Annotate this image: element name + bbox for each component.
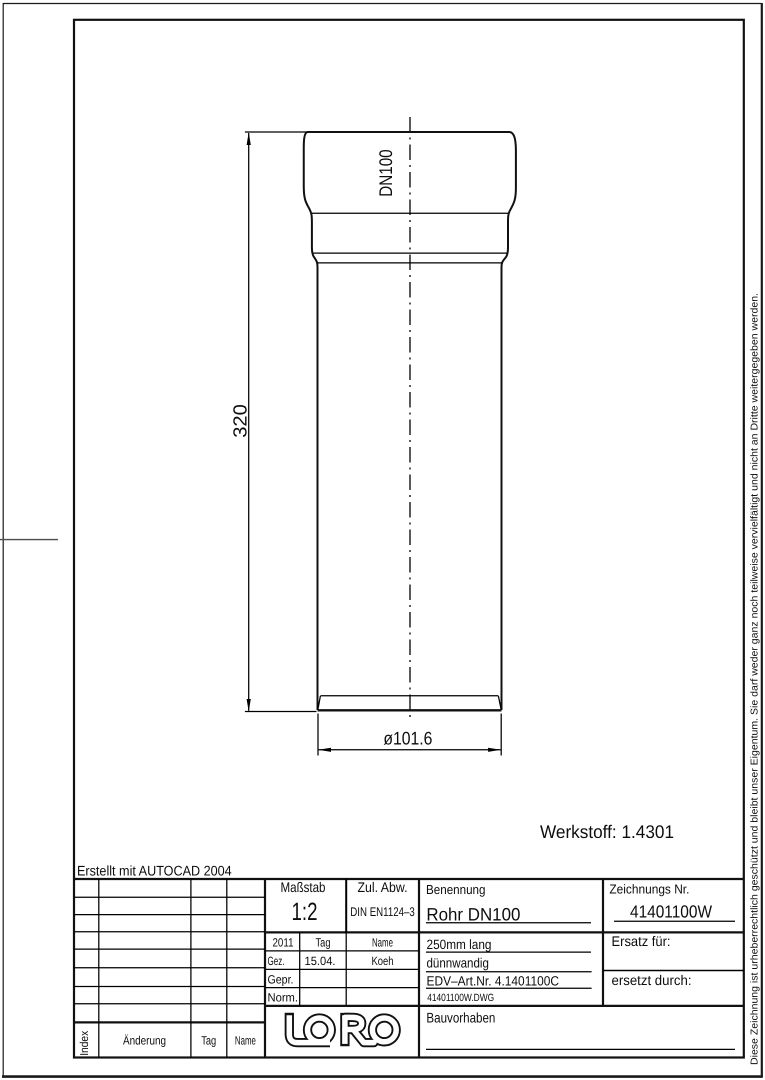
svg-text:41401100W.DWG: 41401100W.DWG [427,992,494,1004]
svg-text:2011: 2011 [273,936,294,950]
svg-text:Name: Name [235,1034,256,1048]
svg-text:Tag: Tag [316,936,331,950]
svg-text:250mm lang: 250mm lang [427,937,492,952]
svg-text:DIN EN1124–3: DIN EN1124–3 [350,905,415,919]
svg-text:Bauvorhaben: Bauvorhaben [426,1009,495,1025]
svg-text:EDV–Art.Nr. 4.1401100C: EDV–Art.Nr. 4.1401100C [427,973,560,988]
svg-text:1:2: 1:2 [292,898,318,926]
svg-text:Diese Zeichnung ist urheberrec: Diese Zeichnung ist urheberrechtlich ges… [749,293,760,1065]
svg-text:Änderung: Änderung [123,1034,166,1048]
svg-text:Norm.: Norm. [268,991,299,1005]
svg-text:Zul. Abw.: Zul. Abw. [358,879,408,895]
svg-text:Ersatz für:: Ersatz für: [612,933,671,949]
svg-text:DN100: DN100 [375,149,396,196]
svg-text:41401100W: 41401100W [630,901,712,921]
svg-text:Zeichnungs Nr.: Zeichnungs Nr. [609,882,689,897]
svg-text:Tag: Tag [201,1034,216,1048]
svg-text:ersetzt durch:: ersetzt durch: [612,972,692,988]
svg-text:Index: Index [79,1031,91,1056]
svg-text:15.04.: 15.04. [305,954,336,968]
svg-text:Name: Name [372,936,393,950]
svg-text:Maßstab: Maßstab [281,879,326,895]
svg-text:dünnwandig: dünnwandig [427,956,489,971]
svg-text:Erstellt mit AUTOCAD 2004: Erstellt mit AUTOCAD 2004 [77,862,232,878]
svg-text:Benennung: Benennung [426,882,486,897]
svg-text:Gepr.: Gepr. [268,973,294,987]
svg-text:Koeh: Koeh [372,954,394,968]
svg-text:ø101.6: ø101.6 [383,728,432,749]
svg-text:Werkstoff: 1.4301: Werkstoff: 1.4301 [540,821,674,842]
svg-text:320: 320 [230,404,251,438]
svg-text:Rohr DN100: Rohr DN100 [426,904,520,924]
svg-text:Gez.: Gez. [268,954,285,968]
